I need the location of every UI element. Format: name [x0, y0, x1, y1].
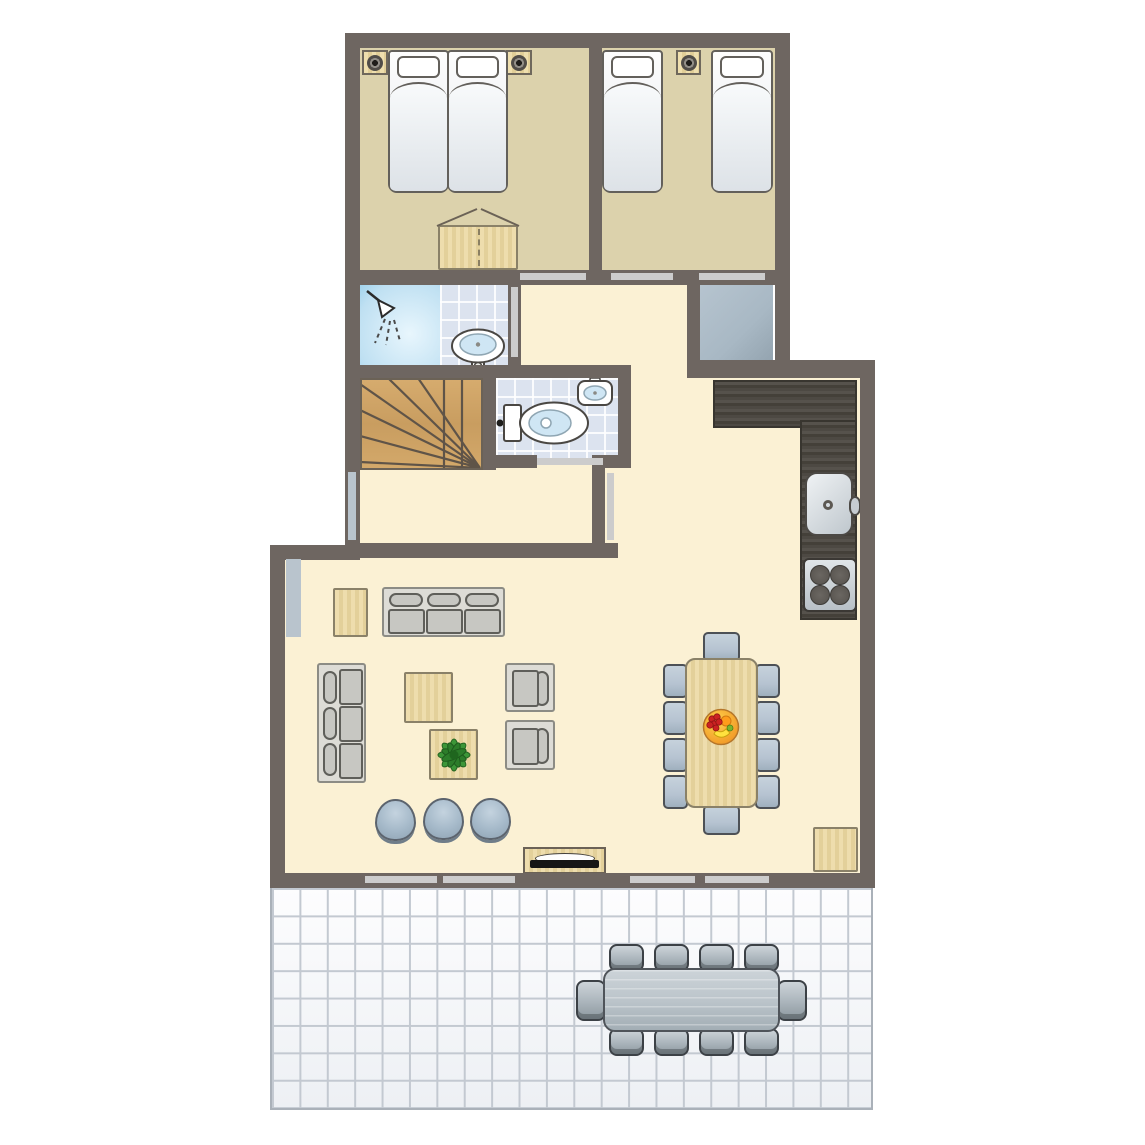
pillow [397, 56, 440, 78]
tv-icon [530, 860, 599, 868]
tv-sideboard [523, 847, 606, 874]
lamp-icon [681, 55, 697, 71]
outdoor-chair [609, 1028, 644, 1056]
toilet-icon [496, 400, 594, 448]
plant-icon [434, 735, 474, 775]
bed-single-1 [602, 50, 663, 193]
wardrobe [438, 225, 518, 270]
pillow [611, 56, 654, 78]
terrace-door-2 [443, 876, 515, 883]
wall-left-lower [270, 545, 285, 888]
sofa-3-seat-left [317, 663, 366, 783]
door-bedroom-1 [520, 273, 586, 280]
pouf [375, 799, 416, 841]
wardrobe-divider [478, 229, 480, 266]
sofa-back-cushion [323, 707, 337, 740]
blanket [390, 82, 447, 191]
door-bedroom-2 [611, 273, 673, 280]
wardrobe-open-doors-icon [434, 205, 522, 227]
wall-right-upper [775, 33, 790, 378]
side-table [333, 588, 368, 637]
nightstand [506, 50, 532, 75]
wall-closet-left [687, 283, 700, 362]
outdoor-dining-table [603, 968, 780, 1032]
blanket [449, 82, 506, 191]
door-landing [607, 473, 614, 540]
nightstand [676, 50, 701, 75]
wall-toilet-right [618, 378, 631, 460]
burner-icon [830, 565, 850, 585]
burner-icon [810, 565, 830, 585]
winder-staircase [360, 378, 483, 470]
sofa-seat-cushion [464, 609, 501, 634]
nightstand [362, 50, 388, 75]
wall-landing-bottom [345, 543, 618, 558]
floor-plan [0, 0, 1145, 1145]
dining-chair [755, 664, 780, 698]
sofa-seat-cushion [339, 706, 363, 742]
pillow [456, 56, 499, 78]
wall-bedroom-divider [589, 48, 602, 270]
lamp-icon [511, 55, 527, 71]
wall-toilet-bottom-b [603, 455, 631, 468]
wall-top [345, 33, 790, 48]
armchair-seat-cushion [512, 728, 539, 765]
coffee-table [404, 672, 453, 723]
sofa-seat-cushion [426, 609, 463, 634]
pouf [423, 798, 464, 840]
burner-icon [830, 585, 850, 605]
blanket [713, 82, 771, 191]
wall-bottom [270, 873, 875, 888]
terrace-door-4 [705, 876, 769, 883]
dining-chair [755, 701, 780, 735]
dining-chair [755, 775, 780, 809]
floor-hallway [521, 283, 687, 378]
sofa-seat-cushion [388, 609, 425, 634]
outdoor-chair [744, 1028, 779, 1056]
armchair-1 [505, 663, 555, 712]
bed-single-2 [711, 50, 773, 193]
wall-landing-right [592, 455, 605, 545]
wall-right-lower [860, 360, 875, 888]
sofa-back-cushion [465, 593, 499, 607]
kitchen-sink [805, 472, 853, 536]
outdoor-chair [654, 1028, 689, 1056]
sofa-seat-cushion [339, 743, 363, 779]
sofa-back-cushion [389, 593, 423, 607]
armchair-seat-cushion [512, 670, 539, 707]
dining-chair [703, 805, 740, 835]
sofa-3-seat-top [382, 587, 505, 637]
sofa-back-cushion [323, 671, 337, 704]
sofa-back-cushion [427, 593, 461, 607]
hand-basin-icon [576, 377, 614, 407]
blanket [604, 82, 661, 191]
stove [803, 558, 857, 612]
outdoor-chair [699, 1028, 734, 1056]
corner-cabinet [813, 827, 858, 872]
wall-toilet-bottom-a [484, 455, 537, 468]
door-bathroom [511, 287, 518, 357]
dining-chair [755, 738, 780, 772]
armchair-2 [505, 720, 555, 770]
door-toilet [537, 458, 603, 465]
terrace-door-1 [365, 876, 437, 883]
sofa-seat-cushion [339, 669, 363, 705]
floor-closet [700, 285, 773, 362]
bed-double-left [388, 50, 449, 193]
door-closet [699, 273, 765, 280]
pouf [470, 798, 511, 840]
fruit-bowl-icon [702, 708, 740, 746]
wall-bathroom-bottom [345, 365, 631, 378]
burner-icon [810, 585, 830, 605]
window-living-left [286, 559, 301, 637]
outdoor-chair [777, 980, 807, 1021]
terrace-door-3 [630, 876, 695, 883]
shower-icon [363, 287, 415, 349]
sofa-back-cushion [323, 743, 337, 776]
lamp-icon [367, 55, 383, 71]
bed-double-right [447, 50, 508, 193]
pillow [720, 56, 764, 78]
wall-step-right [687, 360, 875, 378]
drain-icon [823, 500, 833, 510]
window-landing [348, 472, 356, 540]
outdoor-chair [576, 980, 606, 1021]
